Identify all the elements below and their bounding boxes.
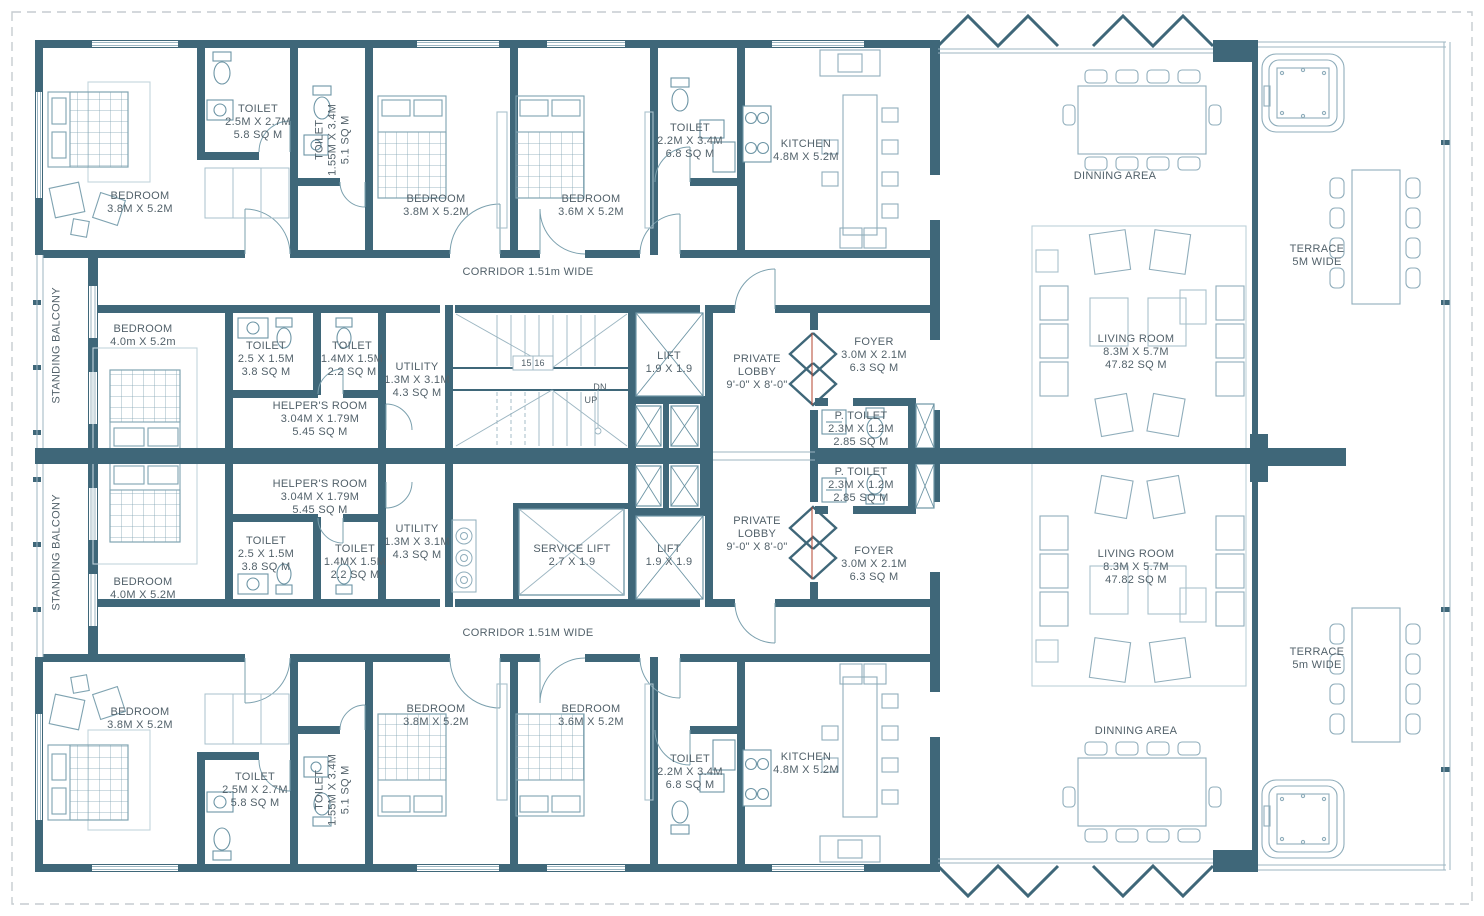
room-area: 5.8 SQ M bbox=[200, 797, 310, 810]
room-name: HELPER'S ROOM bbox=[250, 400, 390, 413]
label-terrace-top: TERRACE 5M WIDE bbox=[1267, 243, 1367, 269]
label-p-toilet-top: P. TOILET 2.3M X 1.2M 2.85 SQ M bbox=[806, 410, 916, 450]
room-dims: 1.3M X 3.1M bbox=[377, 536, 457, 549]
room-area: 5.1 SQ M bbox=[340, 742, 353, 837]
room-name: FOYER bbox=[819, 545, 929, 558]
room-area: 3.8 SQ M bbox=[221, 561, 311, 574]
label-utility-top: UTILITY 1.3M X 3.1M 4.3 SQ M bbox=[377, 361, 457, 401]
room-dims: 3.8M X 5.2M bbox=[80, 719, 200, 732]
label-kitchen-top: KITCHEN 4.8M X 5.2M bbox=[751, 138, 861, 164]
room-area: 4.3 SQ M bbox=[377, 549, 457, 562]
room-name: BEDROOM bbox=[376, 703, 496, 716]
room-name: BEDROOM bbox=[80, 190, 200, 203]
room-dims: 3.04M X 1.79M bbox=[250, 413, 390, 426]
room-dims: 9'-0" X 8'-0" bbox=[724, 541, 790, 554]
room-dims: 8.3M X 5.7M bbox=[1066, 346, 1206, 359]
room-name: TOILET bbox=[314, 92, 327, 187]
label-bedroom-bottom-left: BEDROOM 3.8M X 5.2M bbox=[80, 706, 200, 732]
label-helpers-room-bottom: HELPER'S ROOM 3.04M X 1.79M 5.45 SQ M bbox=[250, 478, 390, 518]
room-name: UTILITY bbox=[377, 523, 457, 536]
room-dims: 2.5 X 1.5M bbox=[221, 548, 311, 561]
label-lift-top: LIFT 1.9 X 1.9 bbox=[629, 350, 709, 376]
room-name: LIVING ROOM bbox=[1066, 333, 1206, 346]
room-name: TOILET bbox=[203, 103, 313, 116]
room-dims: 2.3M X 1.2M bbox=[806, 423, 916, 436]
label-bedroom-top-right: BEDROOM 3.6M X 5.2M bbox=[531, 193, 651, 219]
label-helpers-room-top: HELPER'S ROOM 3.04M X 1.79M 5.45 SQ M bbox=[250, 400, 390, 440]
room-dims: 1.3M X 3.1M bbox=[377, 374, 457, 387]
room-dims: 2.2M X 3.4M bbox=[635, 766, 745, 779]
label-toilet-top-3: TOILET 2.2M X 3.4M 6.8 SQ M bbox=[635, 122, 745, 162]
room-dims: 3.04M X 1.79M bbox=[250, 491, 390, 504]
room-name: TOILET bbox=[221, 535, 311, 548]
room-dims: 8.3M X 5.7M bbox=[1066, 561, 1206, 574]
label-bedroom-bottom-right: BEDROOM 3.6M X 5.2M bbox=[531, 703, 651, 729]
room-name: PRIVATE LOBBY bbox=[724, 515, 790, 541]
room-dims: 3.8M X 5.2M bbox=[80, 203, 200, 216]
label-kitchen-bottom: KITCHEN 4.8M X 5.2M bbox=[751, 751, 861, 777]
label-toilet-bottom-left: TOILET 2.5M X 2.7M 5.8 SQ M bbox=[200, 771, 310, 811]
label-standing-balcony-top: STANDING BALCONY bbox=[50, 294, 63, 404]
label-toilet-top-left: TOILET 2.5M X 2.7M 5.8 SQ M bbox=[203, 103, 313, 143]
label-private-lobby-top: PRIVATE LOBBY 9'-0" X 8'-0" bbox=[724, 353, 790, 393]
room-dims: 5m WIDE bbox=[1267, 659, 1367, 672]
room-name: TOILET bbox=[200, 771, 310, 784]
room-dims: 1.9 X 1.9 bbox=[629, 556, 709, 569]
balcony-text: STANDING BALCONY bbox=[50, 501, 63, 611]
label-corridor-bottom: CORRIDOR 1.51M WIDE bbox=[438, 627, 618, 640]
label-bedroom-top-mid: BEDROOM 3.8M X 5.2M bbox=[376, 193, 496, 219]
label-stairs-dn: DN bbox=[585, 382, 615, 393]
room-name: LIFT bbox=[629, 350, 709, 363]
label-toilet-mid-1-bottom: TOILET 2.5 X 1.5M 3.8 SQ M bbox=[221, 535, 311, 575]
room-dims: 4.0m X 5.2m bbox=[83, 336, 203, 349]
room-dims: 2.5M X 2.7M bbox=[203, 116, 313, 129]
room-dims: 2.5M X 2.7M bbox=[200, 784, 310, 797]
room-name: LIVING ROOM bbox=[1066, 548, 1206, 561]
room-dims: 3.6M X 5.2M bbox=[531, 206, 651, 219]
room-area: 6.3 SQ M bbox=[819, 571, 929, 584]
room-name: BEDROOM bbox=[376, 193, 496, 206]
room-area: 6.8 SQ M bbox=[635, 148, 745, 161]
room-dims: 3.0M X 2.1M bbox=[819, 558, 929, 571]
label-corridor-top: CORRIDOR 1.51m WIDE bbox=[438, 266, 618, 279]
room-area: 47.82 SQ M bbox=[1066, 359, 1206, 372]
room-dims: 3.6M X 5.2M bbox=[531, 716, 651, 729]
label-standing-balcony-bottom: STANDING BALCONY bbox=[50, 501, 63, 611]
room-name: TOILET bbox=[221, 340, 311, 353]
label-private-lobby-bottom: PRIVATE LOBBY 9'-0" X 8'-0" bbox=[724, 515, 790, 555]
room-area: 3.8 SQ M bbox=[221, 366, 311, 379]
label-foyer-top: FOYER 3.0M X 2.1M 6.3 SQ M bbox=[819, 336, 929, 376]
room-dims: 1.55M X 3.4M bbox=[327, 742, 340, 837]
label-toilet-bottom-3: TOILET 2.2M X 3.4M 6.8 SQ M bbox=[635, 753, 745, 793]
room-area: 2.2 SQ M bbox=[310, 569, 400, 582]
label-dining-bottom: DINNING AREA bbox=[1066, 725, 1206, 738]
room-name: PRIVATE LOBBY bbox=[724, 353, 790, 379]
room-area: 5.1 SQ M bbox=[340, 92, 353, 187]
label-foyer-bottom: FOYER 3.0M X 2.1M 6.3 SQ M bbox=[819, 545, 929, 585]
label-dining-top: DINNING AREA bbox=[1045, 170, 1185, 183]
stairs-step-numbers: 15 16 bbox=[513, 358, 553, 369]
room-area: 6.3 SQ M bbox=[819, 362, 929, 375]
room-area: 6.8 SQ M bbox=[635, 779, 745, 792]
label-lift-bottom: LIFT 1.9 X 1.9 bbox=[629, 543, 709, 569]
room-area: 2.85 SQ M bbox=[806, 492, 916, 505]
label-living-room-bottom: LIVING ROOM 8.3M X 5.7M 47.82 SQ M bbox=[1066, 548, 1206, 588]
room-name: TOILET bbox=[635, 753, 745, 766]
label-bedroom-bottom-mid: BEDROOM 3.8M X 5.2M bbox=[376, 703, 496, 729]
room-dims: 9'-0" X 8'-0" bbox=[724, 379, 790, 392]
room-dims: 4.0M X 5.2M bbox=[83, 589, 203, 602]
label-service-lift: SERVICE LIFT 2.7 X 1.9 bbox=[512, 543, 632, 569]
room-dims: 2.2M X 3.4M bbox=[635, 135, 745, 148]
corridor-text: CORRIDOR 1.51m WIDE bbox=[438, 266, 618, 279]
label-stairs-numbers: 15 16 bbox=[513, 358, 553, 369]
room-dims: 3.8M X 5.2M bbox=[376, 716, 496, 729]
room-name: BEDROOM bbox=[83, 323, 203, 336]
stairs-up-text: UP bbox=[576, 395, 606, 406]
room-name: DINNING AREA bbox=[1045, 170, 1185, 183]
room-name: TERRACE bbox=[1267, 646, 1367, 659]
room-name: HELPER'S ROOM bbox=[250, 478, 390, 491]
room-name: TOILET bbox=[307, 340, 397, 353]
room-dims: 5M WIDE bbox=[1267, 256, 1367, 269]
room-dims: 2.5 X 1.5M bbox=[221, 353, 311, 366]
room-name: KITCHEN bbox=[751, 138, 861, 151]
label-p-toilet-bottom: P. TOILET 2.3M X 1.2M 2.85 SQ M bbox=[806, 466, 916, 506]
room-dims: 2.3M X 1.2M bbox=[806, 479, 916, 492]
balcony-text: STANDING BALCONY bbox=[50, 294, 63, 404]
room-dims: 4.8M X 5.2M bbox=[751, 151, 861, 164]
room-name: FOYER bbox=[819, 336, 929, 349]
floor-plan-canvas: TOILET 2.5M X 2.7M 5.8 SQ M TOILET 1.55M… bbox=[0, 0, 1484, 916]
room-name: TERRACE bbox=[1267, 243, 1367, 256]
room-name: UTILITY bbox=[377, 361, 457, 374]
room-name: BEDROOM bbox=[83, 576, 203, 589]
room-name: P. TOILET bbox=[806, 466, 916, 479]
room-name: P. TOILET bbox=[806, 410, 916, 423]
room-area: 2.85 SQ M bbox=[806, 436, 916, 449]
room-area: 5.45 SQ M bbox=[250, 426, 390, 439]
room-name: BEDROOM bbox=[80, 706, 200, 719]
room-dims: 1.55M X 3.4M bbox=[327, 92, 340, 187]
room-name: KITCHEN bbox=[751, 751, 861, 764]
room-dims: 4.8M X 5.2M bbox=[751, 764, 861, 777]
room-name: TOILET bbox=[635, 122, 745, 135]
label-terrace-bottom: TERRACE 5m WIDE bbox=[1267, 646, 1367, 672]
room-area: 47.82 SQ M bbox=[1066, 574, 1206, 587]
room-name: BEDROOM bbox=[531, 193, 651, 206]
room-dims: 2.7 X 1.9 bbox=[512, 556, 632, 569]
room-dims: 3.8M X 5.2M bbox=[376, 206, 496, 219]
room-area: 5.8 SQ M bbox=[203, 129, 313, 142]
room-name: LIFT bbox=[629, 543, 709, 556]
label-utility-bottom: UTILITY 1.3M X 3.1M 4.3 SQ M bbox=[377, 523, 457, 563]
room-dims: 3.0M X 2.1M bbox=[819, 349, 929, 362]
label-bedroom-mid-left: BEDROOM 4.0m X 5.2m bbox=[83, 323, 203, 349]
room-name: DINNING AREA bbox=[1066, 725, 1206, 738]
label-stairs-up: UP bbox=[576, 395, 606, 406]
label-toilet-bottom-left-vertical: TOILET 1.55M X 3.4M 5.1 SQ M bbox=[314, 742, 354, 837]
stairs-down-text: DN bbox=[585, 382, 615, 393]
label-toilet-mid-1-top: TOILET 2.5 X 1.5M 3.8 SQ M bbox=[221, 340, 311, 380]
room-name: SERVICE LIFT bbox=[512, 543, 632, 556]
room-name: TOILET bbox=[314, 742, 327, 837]
room-area: 4.3 SQ M bbox=[377, 387, 457, 400]
corridor-text: CORRIDOR 1.51M WIDE bbox=[438, 627, 618, 640]
room-area: 5.45 SQ M bbox=[250, 504, 390, 517]
label-bedroom-mid-left-bottom: BEDROOM 4.0M X 5.2M bbox=[83, 576, 203, 602]
labels-layer: TOILET 2.5M X 2.7M 5.8 SQ M TOILET 1.55M… bbox=[0, 0, 1484, 916]
label-bedroom-top-left: BEDROOM 3.8M X 5.2M bbox=[80, 190, 200, 216]
room-dims: 1.9 X 1.9 bbox=[629, 363, 709, 376]
room-name: BEDROOM bbox=[531, 703, 651, 716]
label-living-room-top: LIVING ROOM 8.3M X 5.7M 47.82 SQ M bbox=[1066, 333, 1206, 373]
label-toilet-top-left-vertical: TOILET 1.55M X 3.4M 5.1 SQ M bbox=[314, 92, 354, 187]
